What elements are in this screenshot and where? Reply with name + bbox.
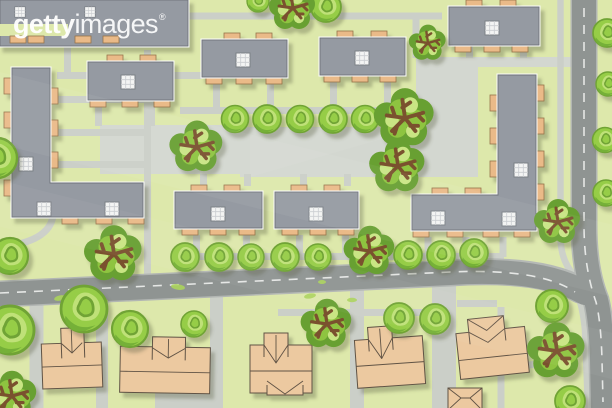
skylight [485, 21, 499, 35]
skylight [355, 51, 369, 65]
getty-watermark: gettyimages® [13, 11, 166, 38]
skylight [19, 157, 33, 171]
apartment-building [202, 33, 287, 84]
round-tree [319, 105, 347, 133]
round-tree [555, 386, 585, 408]
garage [448, 388, 482, 408]
aerial-map: gettyimages® [0, 0, 612, 408]
patio [155, 393, 223, 408]
registered-mark: ® [159, 12, 166, 22]
skylight [514, 163, 528, 177]
skylight [236, 53, 250, 67]
skylight [211, 207, 225, 221]
round-tree [61, 286, 107, 332]
round-tree [253, 105, 281, 133]
round-tree [311, 0, 341, 22]
getty-logo-light: images [75, 9, 158, 39]
round-tree [593, 180, 612, 206]
getty-logo-bold: getty [13, 9, 75, 39]
round-tree [0, 306, 34, 354]
round-tree [0, 238, 28, 274]
round-tree [593, 128, 612, 153]
skylight [121, 75, 135, 89]
round-tree [287, 106, 314, 133]
round-tree [112, 311, 148, 347]
round-tree [181, 311, 207, 337]
aerial-map-illustration [0, 0, 612, 408]
apartment-building [449, 0, 539, 52]
apartment-building [320, 31, 405, 82]
